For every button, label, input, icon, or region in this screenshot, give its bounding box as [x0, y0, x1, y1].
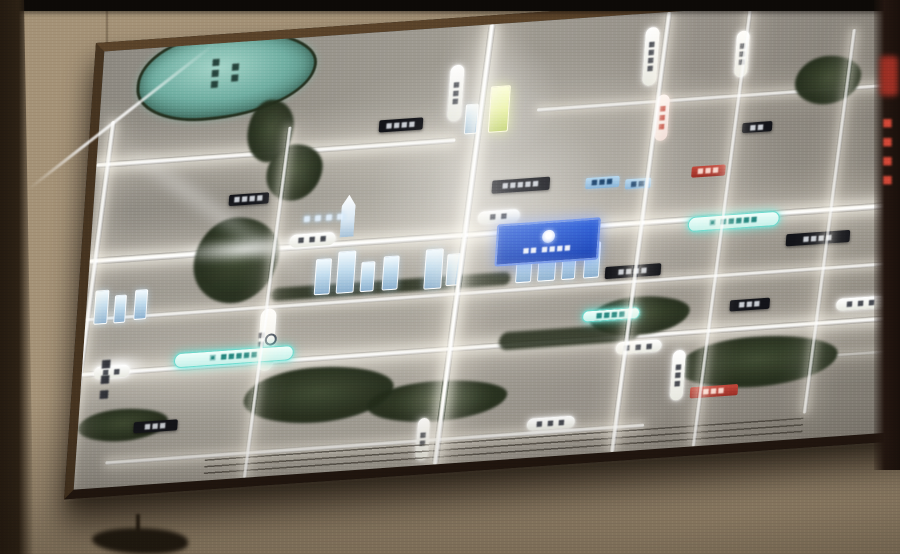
map-panel-frame: ■ ■ ■■ ■ ■ ■■ ■■ ■■ ■ ■■ ■ ■■ ■ ■■■■■■■■… — [64, 0, 900, 499]
road-vertical-main — [432, 24, 496, 465]
road-vertical — [242, 126, 293, 477]
vertical-roads-layer — [74, 0, 900, 490]
photo-of-illuminated-site-map: { "scene": { "description_colors": { "wa… — [0, 0, 900, 554]
road-vertical — [802, 29, 857, 414]
illuminated-map: ■ ■ ■■ ■ ■ ■■ ■■ ■■ ■ ■■ ■ ■■ ■ ■■■■■■■■… — [74, 0, 900, 490]
road-vertical — [691, 6, 753, 446]
road-vertical — [609, 12, 672, 452]
